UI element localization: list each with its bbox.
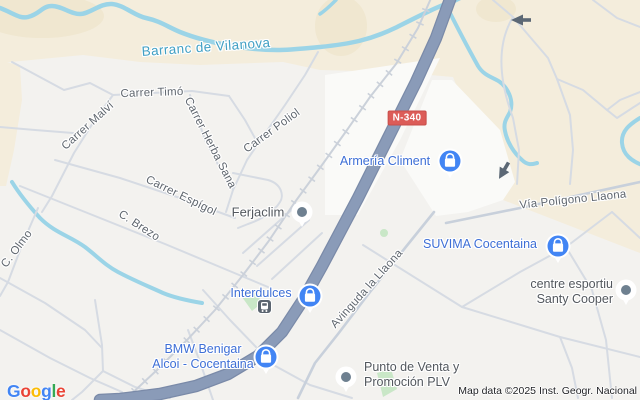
- shopping-pin-icon[interactable]: [437, 148, 463, 179]
- google-logo-letter: o: [20, 381, 30, 400]
- poi-label-armeria-climent[interactable]: Armería Climent: [340, 154, 430, 168]
- shopping-pin-icon[interactable]: [545, 233, 571, 264]
- map-attribution[interactable]: Map data ©2025 Inst. Geogr. Nacional: [458, 385, 637, 397]
- train-station-icon[interactable]: [257, 299, 272, 314]
- poi-pin-icon[interactable]: [335, 366, 357, 393]
- poi-label-line: Promoción PLV: [364, 375, 459, 390]
- route-shield-n340: N-340: [388, 111, 427, 126]
- poi-label-ferjaclim[interactable]: Ferjaclim: [232, 205, 285, 220]
- google-logo[interactable]: Google: [7, 381, 65, 400]
- poi-label-line: Alcoi - Cocentaina: [152, 357, 253, 372]
- poi-label-line: Punto de Venta y: [364, 360, 459, 375]
- poi-label-line: Santy Cooper: [530, 292, 613, 307]
- google-logo-letter: G: [7, 381, 20, 400]
- poi-label-suvima-cocentaina[interactable]: SUVIMA Cocentaina: [423, 237, 537, 251]
- poi-pin-icon[interactable]: [291, 201, 313, 228]
- shopping-pin-icon[interactable]: [253, 344, 279, 375]
- stream-southwest: [12, 182, 202, 303]
- poi-pin-icon[interactable]: [615, 279, 637, 306]
- poi-label-punto-de-venta[interactable]: Punto de Venta y Promoción PLV: [364, 360, 459, 390]
- poi-label-bmw-benigar[interactable]: BMW Benigar Alcoi - Cocentaina: [152, 342, 253, 372]
- poi-label-interdulces[interactable]: Interdulces: [230, 286, 291, 300]
- street-label-carrer-timo: Carrer Timó: [120, 86, 183, 100]
- google-logo-letter: g: [41, 381, 51, 400]
- google-logo-letter: o: [31, 381, 41, 400]
- poi-label-line: centre esportiu: [530, 277, 613, 292]
- poi-label-line: BMW Benigar: [152, 342, 253, 357]
- map-viewport[interactable]: Barranc de Vilanova Carrer Timó Carrer M…: [0, 0, 640, 400]
- poi-label-centre-esportiu[interactable]: centre esportiu Santy Cooper: [530, 277, 613, 307]
- shopping-pin-icon[interactable]: [297, 283, 323, 314]
- google-logo-letter: e: [56, 381, 65, 400]
